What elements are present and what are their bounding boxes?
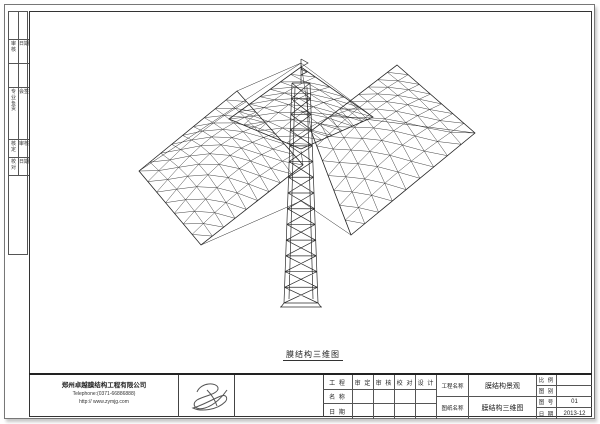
sign-cell (374, 390, 395, 404)
field-date-label: 日 期 (323, 404, 353, 419)
sign-col-shenhe: 审 核 (374, 375, 395, 390)
company-name: 郑州卓越膜结构工程有限公司 (31, 379, 177, 389)
sign-cell (416, 390, 437, 404)
drawing-name-value: 膜结构三维图 (469, 397, 537, 419)
company-telephone: Telephone:(0371-66886888) (31, 391, 177, 397)
sign-cell (353, 404, 374, 419)
sign-cell (395, 390, 416, 404)
company-block: 郑州卓越膜结构工程有限公司 Telephone:(0371-66886888) … (31, 379, 177, 417)
meta-label-scale: 比 例 (537, 375, 557, 386)
sign-cell (395, 404, 416, 419)
meta-label-category: 图 别 (537, 386, 557, 397)
divider (178, 375, 179, 417)
project-name-value: 膜结构景观 (469, 375, 537, 397)
company-logo-icon (187, 378, 231, 416)
sign-col-jiaodui: 校 对 (395, 375, 416, 390)
sign-cell (353, 390, 374, 404)
sign-col-shending: 审 定 (353, 375, 374, 390)
drawing-caption: 膜结构三维图 (255, 349, 371, 360)
meta-value-scale (557, 375, 592, 386)
drawing-name-label: 图纸名称 (437, 397, 469, 419)
meta-value-number: 01 (557, 397, 592, 408)
drawing-sheet: 审核 日期 专业负责 会签 核定 审核 校对 日期 膜结构三维图 郑州卓越膜结构… (4, 4, 595, 419)
meta-value-date: 2013-12 (557, 408, 592, 419)
sign-cell (416, 404, 437, 419)
divider (234, 375, 235, 417)
field-name-label: 名 称 (323, 390, 353, 404)
project-name-label: 工程名称 (437, 375, 469, 397)
company-website: http:// www.zymjg.com (31, 399, 177, 405)
title-block: 郑州卓越膜结构工程有限公司 Telephone:(0371-66886888) … (29, 373, 592, 417)
meta-label-number: 图 号 (537, 397, 557, 408)
field-project-label: 工 程 (323, 375, 353, 390)
meta-label-date: 日 期 (537, 408, 557, 419)
sign-col-sheji: 设 计 (416, 375, 437, 390)
drawing-caption-text: 膜结构三维图 (283, 350, 343, 361)
sign-cell (374, 404, 395, 419)
meta-value-category (557, 386, 592, 397)
